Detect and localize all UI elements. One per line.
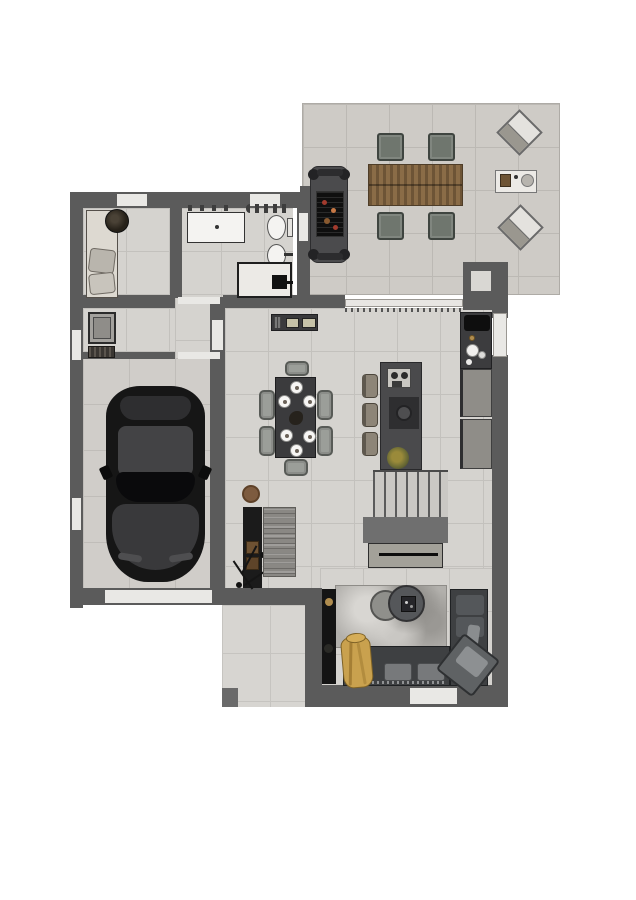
sofa-cushion bbox=[456, 595, 484, 615]
hob-burner bbox=[396, 405, 412, 421]
plate-item bbox=[521, 174, 534, 187]
small-item bbox=[514, 175, 518, 179]
towel-radiator bbox=[246, 204, 290, 213]
sideboard-tray bbox=[286, 318, 299, 328]
place-setting bbox=[303, 430, 316, 443]
coffee-cup bbox=[401, 372, 408, 379]
sideboard-item bbox=[274, 317, 281, 328]
counter-range bbox=[464, 315, 490, 331]
bidet-faucet bbox=[284, 253, 293, 256]
bench-cushion bbox=[88, 248, 117, 275]
window-left-1 bbox=[72, 330, 81, 360]
bar-stool bbox=[362, 374, 378, 398]
bathroom-vanity bbox=[187, 212, 245, 243]
place-setting bbox=[278, 395, 291, 408]
toilet-cistern bbox=[287, 218, 293, 237]
kitchen-counter bbox=[460, 312, 492, 369]
place-setting bbox=[290, 444, 303, 457]
dining-chair bbox=[317, 390, 333, 420]
outdoor-dining-table bbox=[368, 164, 463, 206]
washer-lid bbox=[93, 317, 111, 339]
sofa-pillow bbox=[384, 663, 412, 681]
yellow-armchair bbox=[340, 635, 374, 689]
round-pouf bbox=[242, 485, 260, 503]
dining-chair bbox=[259, 390, 275, 420]
outdoor-chair bbox=[377, 133, 404, 161]
door-vestibule-top bbox=[178, 297, 220, 304]
outdoor-side-table bbox=[495, 170, 537, 193]
grill-food bbox=[324, 218, 330, 224]
car-roof bbox=[118, 426, 193, 476]
wall-right bbox=[492, 355, 508, 688]
window-left-2 bbox=[72, 498, 81, 530]
dining-chair bbox=[285, 361, 309, 376]
porch-step bbox=[222, 688, 238, 707]
outdoor-chair bbox=[428, 133, 455, 161]
floor-plan bbox=[0, 0, 636, 900]
dining-chair bbox=[317, 426, 333, 456]
grill-food bbox=[322, 200, 327, 205]
laundry-basket bbox=[88, 346, 115, 358]
decor-dot bbox=[410, 605, 413, 608]
door-vestibule-bottom bbox=[178, 352, 220, 359]
outdoor-chair bbox=[377, 212, 404, 240]
decor-dot bbox=[405, 601, 408, 604]
grill-handle bbox=[317, 253, 343, 260]
table-decor-box bbox=[401, 596, 416, 612]
kitchen-base-cabinet bbox=[460, 369, 492, 417]
island-hob bbox=[389, 397, 419, 429]
outdoor-chair bbox=[428, 212, 455, 240]
shower bbox=[237, 262, 292, 298]
dining-chair bbox=[259, 426, 275, 456]
stair-treads bbox=[373, 470, 448, 517]
coat-stand-branch bbox=[241, 545, 258, 574]
grill-grate bbox=[316, 191, 344, 237]
island-plant bbox=[387, 447, 409, 469]
sideboard-tray bbox=[302, 318, 316, 328]
armchair-fold bbox=[357, 643, 367, 685]
sliding-door-track bbox=[345, 308, 463, 312]
coffee-station bbox=[387, 368, 411, 388]
wall-terrace-left bbox=[300, 186, 310, 296]
runner-rug bbox=[263, 507, 296, 577]
coffee-cup bbox=[391, 372, 398, 379]
garage-door bbox=[105, 590, 212, 603]
car bbox=[106, 386, 205, 582]
dining-table bbox=[275, 377, 316, 458]
armchair-headrest bbox=[346, 632, 367, 644]
console-decor-gold bbox=[325, 598, 333, 606]
window-top-1 bbox=[117, 194, 147, 206]
armchair-fold bbox=[349, 642, 353, 686]
coffee-table-large bbox=[388, 585, 425, 622]
sliding-door-terrace bbox=[345, 299, 463, 307]
counter-faucet bbox=[469, 335, 475, 341]
kitchen-base-cabinet bbox=[460, 419, 492, 469]
chaise-cushion bbox=[455, 645, 489, 678]
counter-plate bbox=[466, 359, 472, 365]
place-setting bbox=[290, 381, 303, 394]
door-hall-terrace bbox=[299, 213, 308, 241]
centerpiece-plant bbox=[289, 411, 303, 425]
wall-left bbox=[70, 192, 83, 608]
bar-stool bbox=[362, 432, 378, 456]
grill-handle bbox=[317, 169, 343, 176]
vanity-faucet bbox=[215, 225, 219, 229]
car-windshield bbox=[116, 472, 195, 502]
shower-arm bbox=[285, 281, 293, 284]
place-setting bbox=[280, 429, 293, 442]
bbq-grill bbox=[310, 166, 348, 263]
tray-item bbox=[500, 174, 511, 187]
coat-stand-hook bbox=[236, 582, 242, 588]
door-garage-house bbox=[212, 320, 223, 350]
pillar-window bbox=[471, 271, 491, 291]
media-console bbox=[322, 589, 336, 684]
door-right-wall bbox=[493, 313, 507, 357]
bench-cushion bbox=[88, 272, 116, 296]
entry-plant bbox=[105, 209, 129, 233]
place-setting bbox=[303, 395, 316, 408]
sideboard bbox=[271, 314, 318, 331]
stair-landing bbox=[363, 517, 448, 543]
washing-machine bbox=[88, 312, 116, 344]
bar-stool bbox=[362, 403, 378, 427]
car-rear-window bbox=[120, 396, 191, 420]
grill-food bbox=[331, 208, 336, 213]
kitchen-island bbox=[380, 362, 422, 470]
understair-sideboard bbox=[368, 543, 443, 568]
towel-bar bbox=[188, 205, 228, 211]
sideboard-handle bbox=[379, 553, 438, 556]
console-plant bbox=[324, 644, 333, 653]
window-living-bottom bbox=[410, 688, 457, 704]
wall-entry-bath-divider bbox=[170, 208, 182, 298]
coffee-machine bbox=[392, 381, 402, 387]
counter-plate bbox=[478, 351, 486, 359]
grill-food bbox=[333, 225, 338, 230]
dining-chair bbox=[284, 459, 308, 476]
